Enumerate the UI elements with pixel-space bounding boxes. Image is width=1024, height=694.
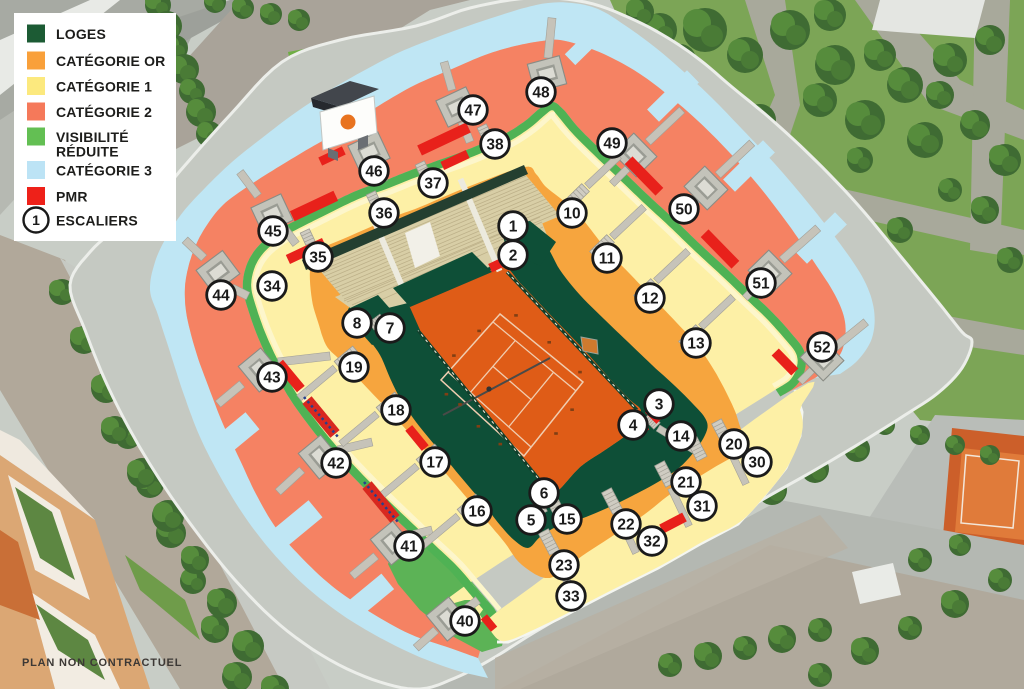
- svg-text:32: 32: [643, 534, 660, 551]
- svg-text:12: 12: [641, 291, 658, 308]
- svg-text:21: 21: [677, 475, 695, 492]
- svg-text:34: 34: [263, 279, 281, 296]
- svg-text:48: 48: [532, 85, 550, 102]
- svg-text:30: 30: [748, 455, 765, 472]
- svg-text:23: 23: [555, 558, 573, 575]
- svg-text:14: 14: [672, 429, 690, 446]
- svg-text:8: 8: [353, 316, 362, 333]
- svg-text:CATÉGORIE 1: CATÉGORIE 1: [56, 79, 152, 95]
- svg-text:50: 50: [675, 202, 692, 219]
- svg-text:CATÉGORIE 2: CATÉGORIE 2: [56, 104, 152, 120]
- svg-text:ESCALIERS: ESCALIERS: [56, 213, 138, 229]
- svg-text:46: 46: [365, 164, 383, 181]
- svg-text:6: 6: [540, 486, 549, 503]
- svg-text:44: 44: [212, 288, 230, 305]
- svg-text:PMR: PMR: [56, 189, 88, 205]
- svg-text:17: 17: [426, 455, 443, 472]
- svg-text:49: 49: [603, 136, 621, 153]
- svg-text:18: 18: [387, 403, 405, 420]
- svg-text:31: 31: [693, 499, 711, 516]
- svg-text:47: 47: [464, 103, 481, 120]
- svg-text:42: 42: [327, 456, 344, 473]
- svg-text:52: 52: [813, 340, 830, 357]
- svg-text:PLAN NON CONTRACTUEL: PLAN NON CONTRACTUEL: [22, 657, 182, 669]
- svg-text:RÉDUITE: RÉDUITE: [56, 144, 119, 160]
- svg-text:45: 45: [264, 224, 282, 241]
- svg-text:7: 7: [386, 321, 395, 338]
- svg-text:1: 1: [32, 212, 40, 228]
- svg-text:37: 37: [424, 176, 441, 193]
- svg-text:LOGES: LOGES: [56, 26, 106, 42]
- svg-text:40: 40: [456, 614, 473, 631]
- svg-text:35: 35: [309, 250, 327, 267]
- svg-text:4: 4: [629, 418, 638, 435]
- svg-text:CATÉGORIE OR: CATÉGORIE OR: [56, 53, 165, 69]
- svg-text:41: 41: [400, 539, 418, 556]
- svg-text:3: 3: [655, 397, 664, 414]
- svg-text:11: 11: [599, 251, 616, 268]
- svg-text:13: 13: [687, 336, 705, 353]
- svg-text:10: 10: [563, 206, 580, 223]
- svg-text:5: 5: [527, 513, 536, 530]
- svg-text:33: 33: [562, 589, 580, 606]
- svg-text:43: 43: [263, 370, 281, 387]
- svg-text:51: 51: [752, 276, 770, 293]
- svg-text:1: 1: [509, 219, 518, 236]
- svg-text:19: 19: [345, 360, 363, 377]
- svg-text:2: 2: [509, 248, 518, 265]
- svg-text:38: 38: [486, 137, 504, 154]
- svg-text:20: 20: [725, 437, 742, 454]
- svg-text:22: 22: [617, 517, 634, 534]
- svg-text:15: 15: [558, 512, 576, 529]
- svg-text:36: 36: [375, 206, 393, 223]
- svg-text:16: 16: [468, 504, 486, 521]
- svg-text:CATÉGORIE 3: CATÉGORIE 3: [56, 163, 152, 179]
